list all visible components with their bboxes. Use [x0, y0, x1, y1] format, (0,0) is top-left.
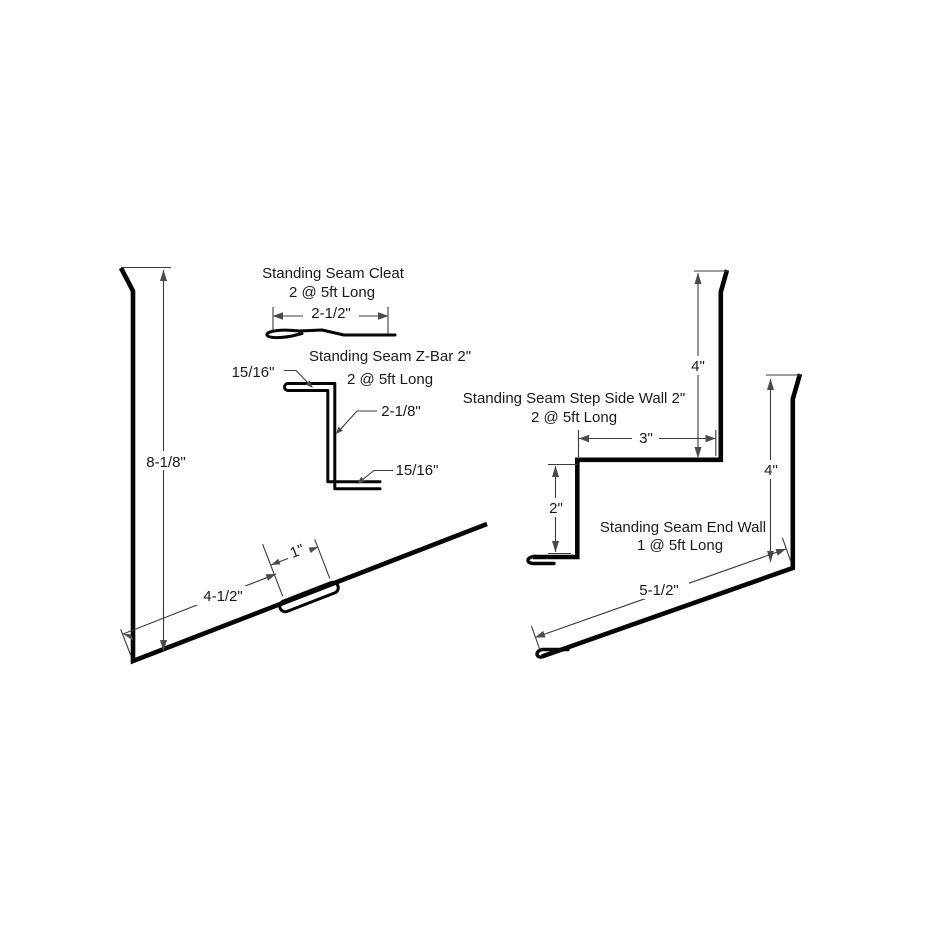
end-wall-base-dimension: 5-1/2": [639, 582, 679, 599]
side-wall-base-extension-line-hem: [263, 544, 283, 596]
flashing-profiles-drawing: 8-1/8" 4-1/2" 1" Standing Seam Cleat 2 @…: [0, 0, 933, 934]
cleat-quantity: 2 @ 5ft Long: [289, 284, 375, 301]
arrowhead-up-icon: [160, 270, 167, 282]
arrowhead-down-icon: [767, 551, 774, 563]
arrowhead-down-icon: [552, 541, 559, 553]
z-bar-figure: Standing Seam Z-Bar 2" 2 @ 5ft Long 15/1…: [232, 348, 471, 489]
side-wall-hem-extension-line: [315, 539, 330, 578]
arrowhead-right-icon: [706, 435, 716, 442]
arrowhead-right-icon: [378, 312, 389, 320]
z-bar-top-leg-dimension: 15/16": [232, 364, 275, 381]
arrowhead-up-icon: [552, 466, 559, 478]
end-wall-quantity: 1 @ 5ft Long: [637, 537, 723, 554]
side-wall-base-dimension: 4-1/2": [203, 588, 243, 605]
arrowhead-left-icon: [579, 435, 589, 442]
end-wall-title: Standing Seam End Wall: [600, 519, 766, 536]
z-bar-web-dimension: 2-1/8": [381, 403, 421, 420]
cleat-width-dimension: 2-1/2": [311, 305, 351, 322]
arrowhead-up-right-icon: [266, 574, 277, 581]
z-bar-hem-end-cap: [285, 384, 288, 391]
step-drop-dimension: 2": [549, 500, 563, 517]
step-run-dimension: 3": [639, 430, 653, 447]
arrowhead-up-right-icon: [775, 549, 786, 556]
side-wall-height-dimension: 8-1/8": [146, 454, 186, 471]
drawing-page: 8-1/8" 4-1/2" 1" Standing Seam Cleat 2 @…: [0, 0, 933, 934]
arrowhead-down-left-icon: [535, 631, 546, 638]
cleat-figure: Standing Seam Cleat 2 @ 5ft Long 2-1/2": [262, 265, 405, 338]
z-bar-quantity: 2 @ 5ft Long: [347, 371, 433, 388]
cleat-title: Standing Seam Cleat: [262, 265, 405, 282]
step-side-wall-quantity: 2 @ 5ft Long: [531, 409, 617, 426]
z-bar-web-leader-line: [338, 411, 377, 432]
z-bar-bottom-leg-dimension: 15/16": [396, 462, 439, 479]
z-bar-profile-outer-line: [288, 384, 380, 489]
step-top-height-dimension: 4": [691, 358, 705, 375]
arrowhead-down-left-icon: [271, 559, 281, 565]
cleat-profile-outline: [267, 330, 395, 338]
arrowhead-down-icon: [695, 447, 702, 459]
arrowhead-left-icon: [273, 312, 284, 320]
z-bar-title: Standing Seam Z-Bar 2": [309, 348, 471, 365]
arrowhead-up-icon: [767, 379, 774, 391]
step-side-wall-title: Standing Seam Step Side Wall 2": [463, 390, 685, 407]
end-wall-height-dimension: 4": [764, 462, 778, 479]
arrowhead-up-icon: [695, 273, 702, 285]
